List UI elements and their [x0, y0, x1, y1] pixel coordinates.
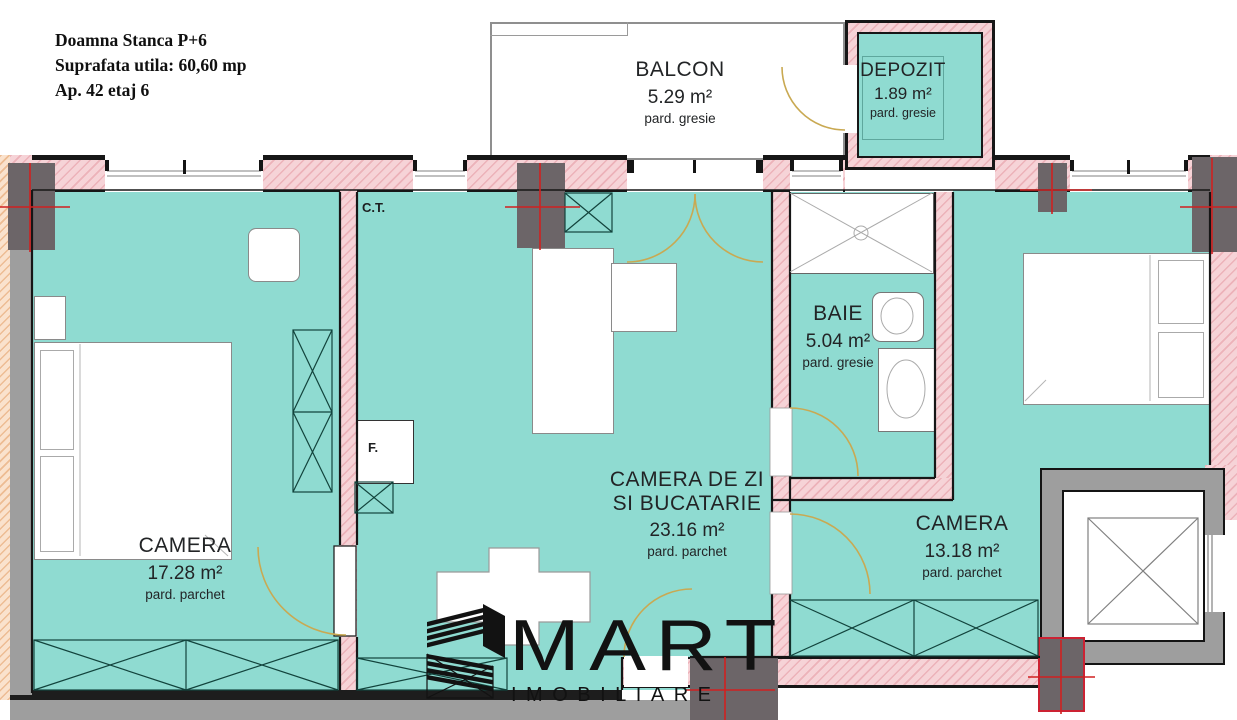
- logo-subtitle: IMOBILIARE: [511, 684, 720, 707]
- project-name: Doamna Stanca P+6: [55, 28, 247, 53]
- door-leaf: [334, 546, 356, 636]
- room-label-living: CAMERA DE ZI SI BUCATARIE 23.16 m² pard.…: [577, 468, 797, 559]
- window-glazing: [105, 160, 1188, 176]
- plan-title-block: Doamna Stanca P+6 Suprafata utila: 60,60…: [55, 28, 247, 103]
- room-label-depozit: DEPOZIT 1.89 m² pard. gresie: [847, 60, 959, 120]
- annotation-f: F.: [368, 440, 378, 455]
- elevator-cross: [1088, 518, 1212, 624]
- door-arc: [790, 514, 870, 594]
- room-label-baie: BAIE 5.04 m² pard. gresie: [768, 302, 908, 370]
- door-arc: [695, 194, 763, 262]
- door-arc: [627, 194, 695, 262]
- floor-plan: Doamna Stanca P+6 Suprafata utila: 60,60…: [0, 0, 1237, 720]
- door-arc: [790, 408, 858, 476]
- room-label-camera2: CAMERA 13.18 m² pard. parchet: [862, 512, 1062, 580]
- room-label-camera1: CAMERA 17.28 m² pard. parchet: [85, 534, 285, 602]
- usable-area: Suprafata utila: 60,60 mp: [55, 53, 247, 78]
- room-label-balcon: BALCON 5.29 m² pard. gresie: [580, 58, 780, 126]
- apartment-info: Ap. 42 etaj 6: [55, 78, 247, 103]
- annotation-ct: C.T.: [362, 200, 385, 215]
- logo-wordmark: MART: [509, 610, 786, 682]
- door-arc: [782, 67, 845, 130]
- logo-building-icon: [425, 602, 509, 706]
- agency-logo: MART IMOBILIARE: [425, 598, 845, 720]
